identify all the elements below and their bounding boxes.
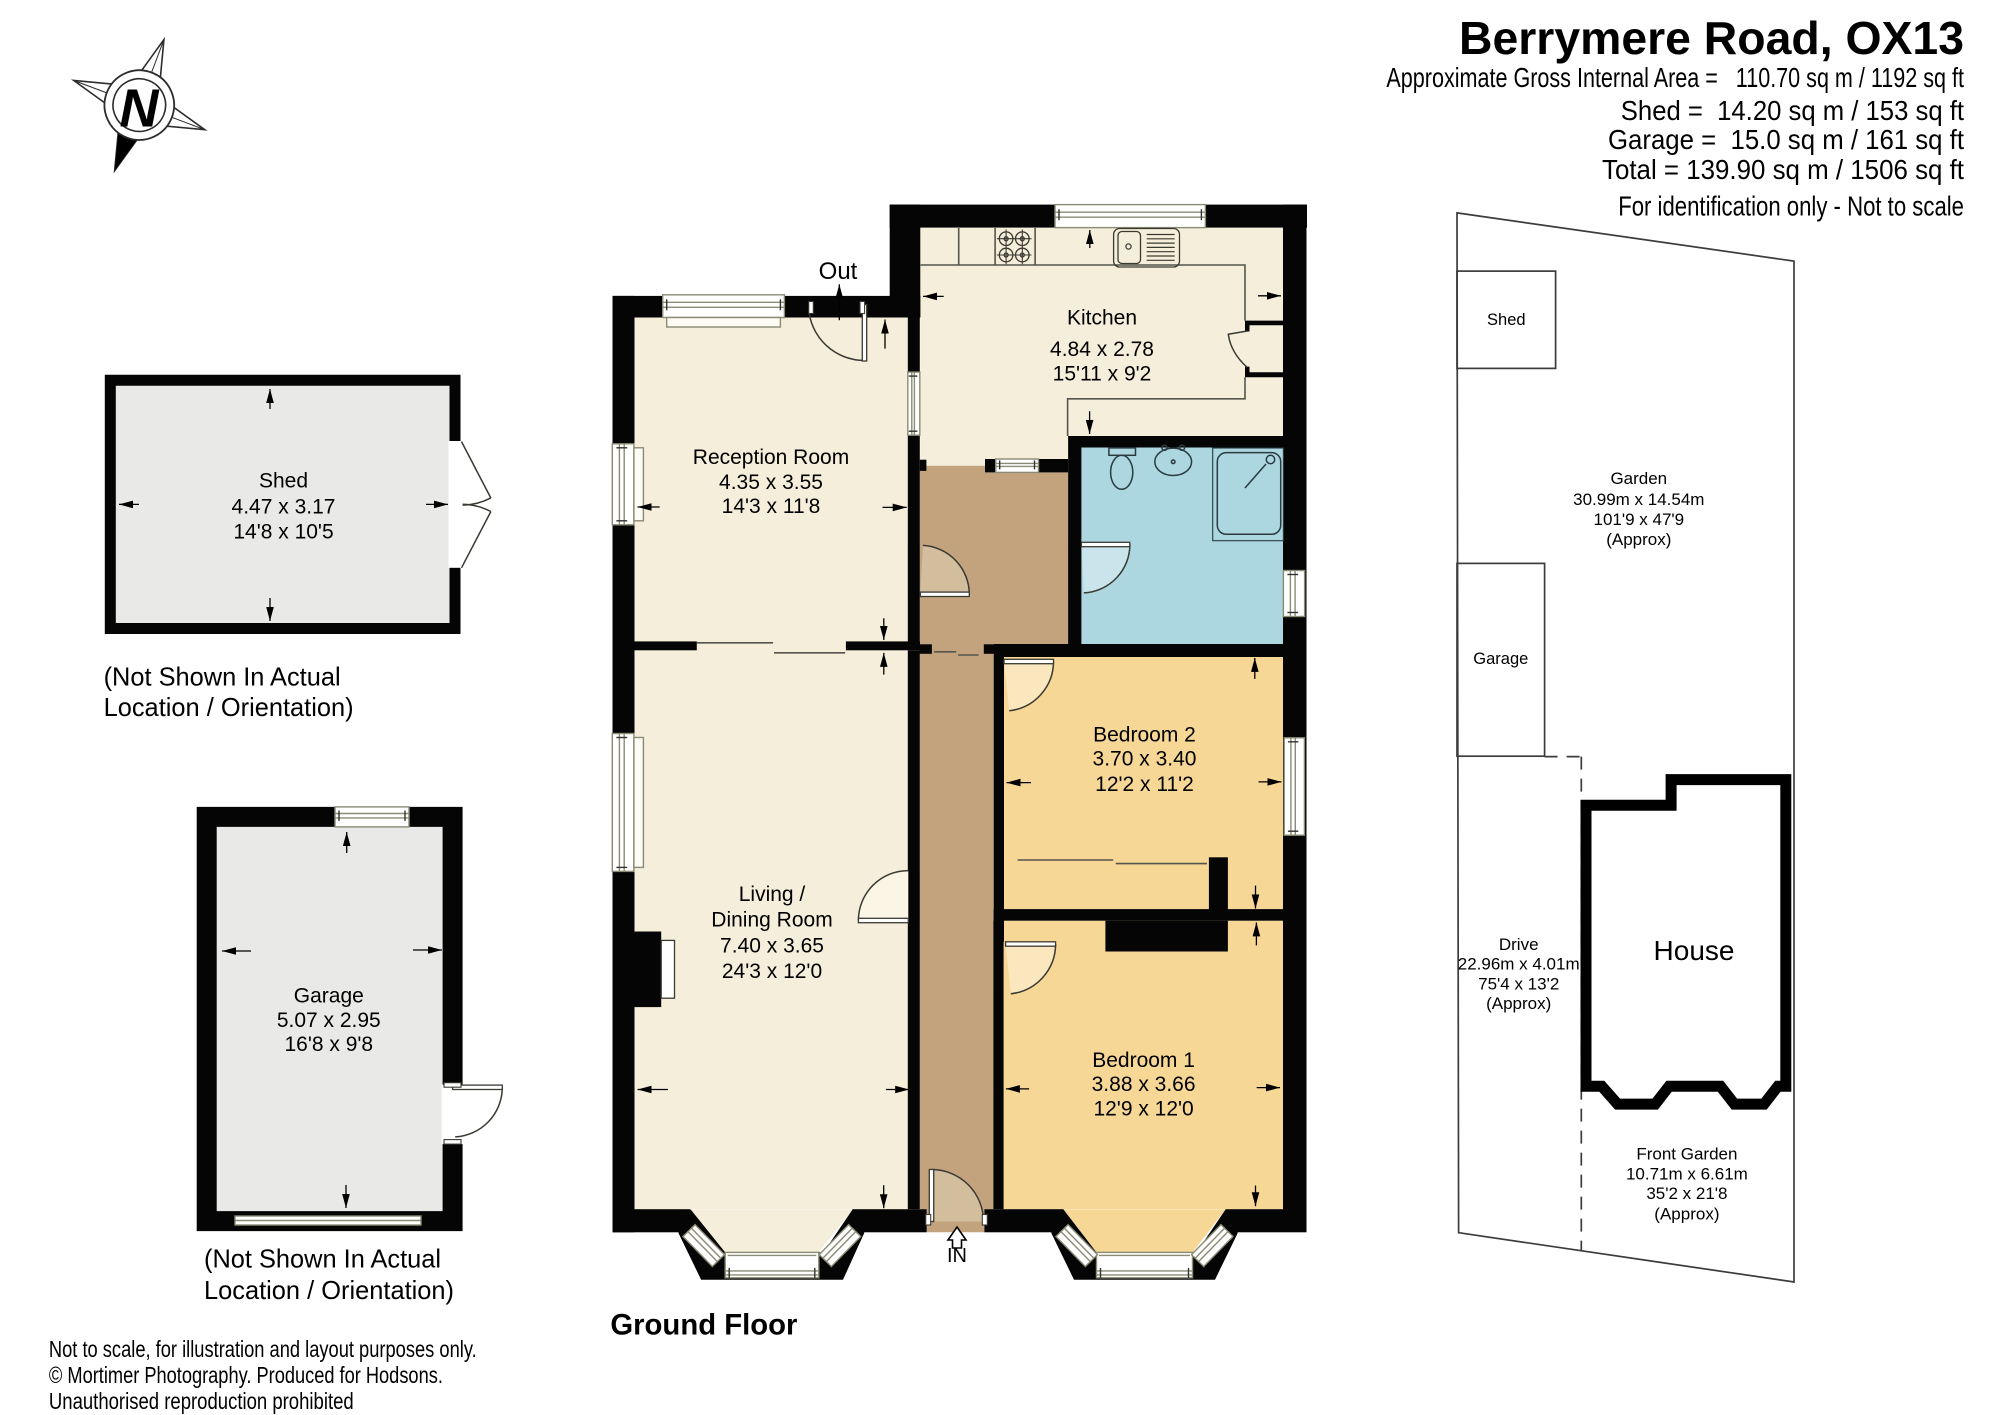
svg-text:12'9 x 12'0: 12'9 x 12'0 bbox=[1093, 1098, 1193, 1121]
svg-text:Bedroom 1: Bedroom 1 bbox=[1092, 1049, 1195, 1072]
svg-text:Front Garden: Front Garden bbox=[1636, 1145, 1737, 1164]
svg-text:House: House bbox=[1654, 935, 1735, 966]
svg-text:14'8 x 10'5: 14'8 x 10'5 bbox=[233, 521, 333, 544]
svg-text:Shed: Shed bbox=[1487, 311, 1526, 329]
svg-text:Kitchen: Kitchen bbox=[1067, 307, 1137, 330]
svg-text:Unauthorised reproduction proh: Unauthorised reproduction prohibited bbox=[49, 1388, 354, 1414]
svg-text:Garage: Garage bbox=[294, 985, 364, 1008]
svg-text:Location / Orientation): Location / Orientation) bbox=[104, 692, 354, 722]
svg-text:16'8 x 9'8: 16'8 x 9'8 bbox=[285, 1033, 374, 1056]
svg-text:(Approx): (Approx) bbox=[1654, 1205, 1719, 1224]
svg-text:30.99m x 14.54m: 30.99m x 14.54m bbox=[1573, 490, 1704, 509]
svg-text:101'9 x 47'9: 101'9 x 47'9 bbox=[1593, 510, 1684, 529]
svg-text:For identification only - Not: For identification only - Not to scale bbox=[1618, 190, 1964, 221]
svg-text:Bedroom 2: Bedroom 2 bbox=[1093, 724, 1196, 747]
svg-text:© Mortimer Photography. Produc: © Mortimer Photography. Produced for Hod… bbox=[49, 1362, 443, 1388]
svg-text:3.88 x 3.66: 3.88 x 3.66 bbox=[1092, 1073, 1196, 1096]
svg-text:(Not Shown In Actual: (Not Shown In Actual bbox=[104, 662, 341, 692]
svg-text:Garage = 15.0 sq m / 161 sq f: Garage = 15.0 sq m / 161 sq ft bbox=[1608, 124, 1964, 155]
svg-text:5.07 x 2.95: 5.07 x 2.95 bbox=[277, 1009, 381, 1032]
svg-text:22.96m x 4.01m: 22.96m x 4.01m bbox=[1458, 955, 1580, 974]
svg-text:Berrymere Road, OX13: Berrymere Road, OX13 bbox=[1459, 12, 1964, 64]
svg-text:Not to scale, for illustration: Not to scale, for illustration and layou… bbox=[49, 1336, 477, 1362]
svg-text:7.40 x 3.65: 7.40 x 3.65 bbox=[720, 934, 824, 957]
svg-text:N: N bbox=[120, 79, 160, 139]
svg-text:Drive: Drive bbox=[1499, 935, 1539, 954]
svg-text:15'11 x 9'2: 15'11 x 9'2 bbox=[1053, 363, 1152, 386]
svg-text:(Approx): (Approx) bbox=[1606, 530, 1671, 549]
svg-text:Total = 139.90 sq m / 1506 sq: Total = 139.90 sq m / 1506 sq ft bbox=[1602, 154, 1964, 185]
svg-text:Location / Orientation): Location / Orientation) bbox=[204, 1275, 454, 1305]
svg-text:Approximate Gross Internal Are: Approximate Gross Internal Area = 110.70… bbox=[1386, 62, 1964, 93]
svg-text:Shed = 14.20 sq m / 153 sq ft: Shed = 14.20 sq m / 153 sq ft bbox=[1621, 95, 1964, 126]
svg-text:Dining Room: Dining Room bbox=[711, 909, 832, 932]
svg-text:4.84 x 2.78: 4.84 x 2.78 bbox=[1050, 338, 1154, 361]
svg-text:24'3 x 12'0: 24'3 x 12'0 bbox=[722, 960, 822, 983]
svg-text:3.70 x 3.40: 3.70 x 3.40 bbox=[1093, 748, 1197, 771]
svg-text:75'4 x 13'2: 75'4 x 13'2 bbox=[1478, 974, 1559, 993]
svg-text:Garden: Garden bbox=[1610, 469, 1667, 488]
svg-text:35'2 x 21'8: 35'2 x 21'8 bbox=[1646, 1184, 1727, 1203]
svg-text:Shed: Shed bbox=[259, 470, 308, 493]
svg-text:12'2 x 11'2: 12'2 x 11'2 bbox=[1095, 773, 1194, 796]
svg-text:Out: Out bbox=[819, 258, 858, 285]
svg-text:(Approx): (Approx) bbox=[1486, 994, 1551, 1013]
svg-text:14'3 x 11'8: 14'3 x 11'8 bbox=[722, 495, 821, 518]
svg-text:4.35 x 3.55: 4.35 x 3.55 bbox=[719, 471, 823, 494]
svg-text:Reception Room: Reception Room bbox=[693, 446, 849, 469]
svg-text:Living /: Living / bbox=[739, 883, 806, 906]
svg-text:Ground Floor: Ground Floor bbox=[610, 1309, 797, 1342]
svg-text:10.71m x 6.61m: 10.71m x 6.61m bbox=[1626, 1164, 1748, 1183]
svg-text:4.47 x 3.17: 4.47 x 3.17 bbox=[232, 496, 336, 519]
svg-text:(Not Shown In Actual: (Not Shown In Actual bbox=[204, 1244, 441, 1274]
svg-text:Garage: Garage bbox=[1473, 650, 1528, 668]
